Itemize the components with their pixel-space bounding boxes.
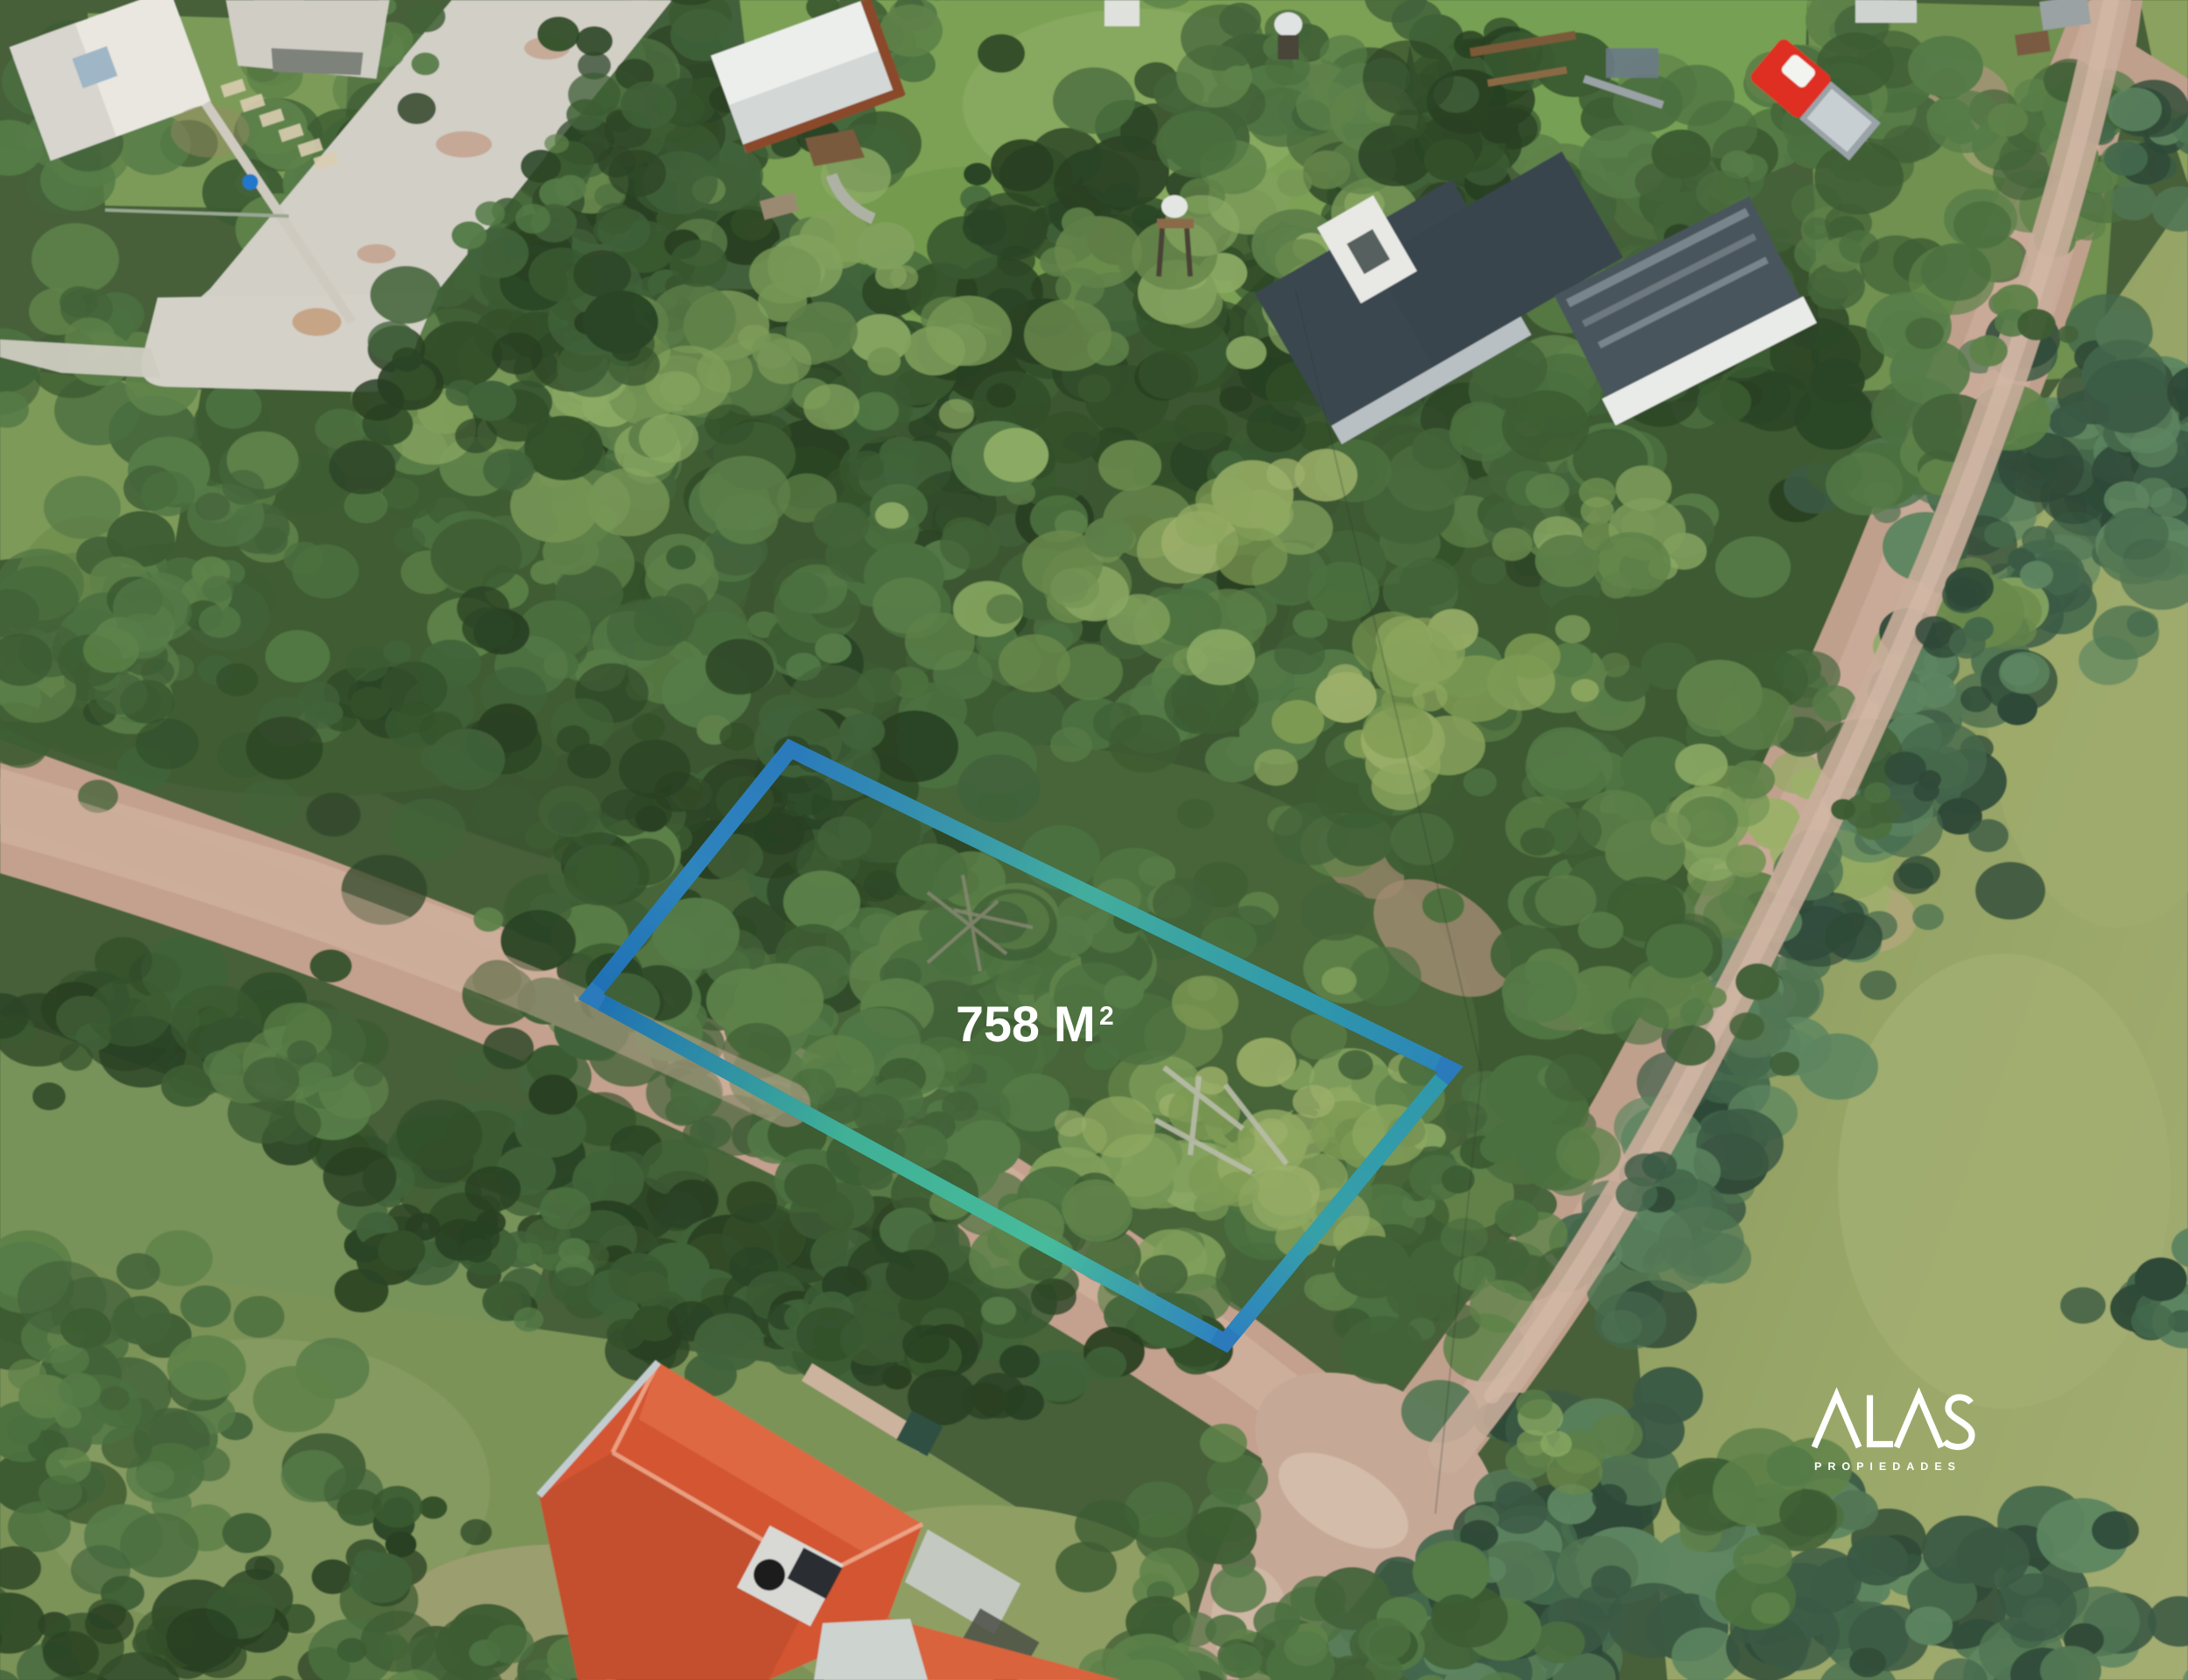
svg-text:2: 2 bbox=[1099, 1002, 1114, 1031]
svg-text:758 M: 758 M bbox=[956, 997, 1096, 1053]
svg-text:PROPIEDADES: PROPIEDADES bbox=[1814, 1460, 1961, 1473]
